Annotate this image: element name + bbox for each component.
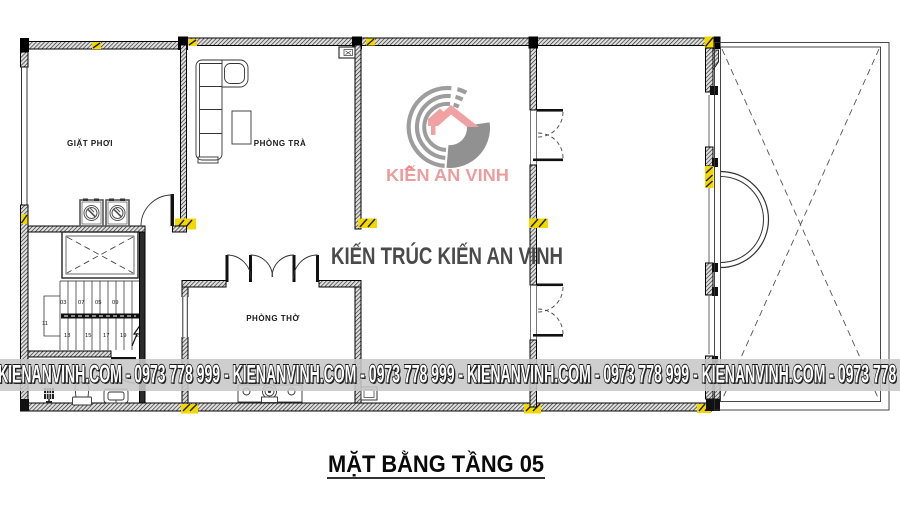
svg-text:KIẾN AN VINH: KIẾN AN VINH — [386, 164, 509, 185]
svg-text:05: 05 — [95, 300, 101, 306]
svg-text:KIENANVINH.COM - 0973 778 999: KIENANVINH.COM - 0973 778 999 - KIENANVI… — [0, 361, 900, 389]
svg-text:PHÒNG TRÀ: PHÒNG TRÀ — [254, 139, 307, 148]
svg-text:07: 07 — [78, 300, 84, 306]
svg-text:15: 15 — [85, 333, 91, 339]
svg-text:09: 09 — [112, 300, 118, 306]
svg-text:GIẶT PHƠI: GIẶT PHƠI — [67, 139, 113, 148]
svg-text:19: 19 — [120, 333, 126, 339]
svg-text:03: 03 — [60, 300, 66, 306]
svg-text:PHÒNG THỜ: PHÒNG THỜ — [246, 314, 300, 323]
svg-text:MẶT BẰNG TẦNG 05: MẶT BẰNG TẦNG 05 — [328, 450, 544, 478]
svg-text:13: 13 — [64, 333, 70, 339]
svg-text:11: 11 — [42, 321, 48, 327]
svg-text:KIẾN TRÚC KIẾN AN VINH: KIẾN TRÚC KIẾN AN VINH — [331, 242, 563, 270]
svg-text:17: 17 — [103, 333, 109, 339]
